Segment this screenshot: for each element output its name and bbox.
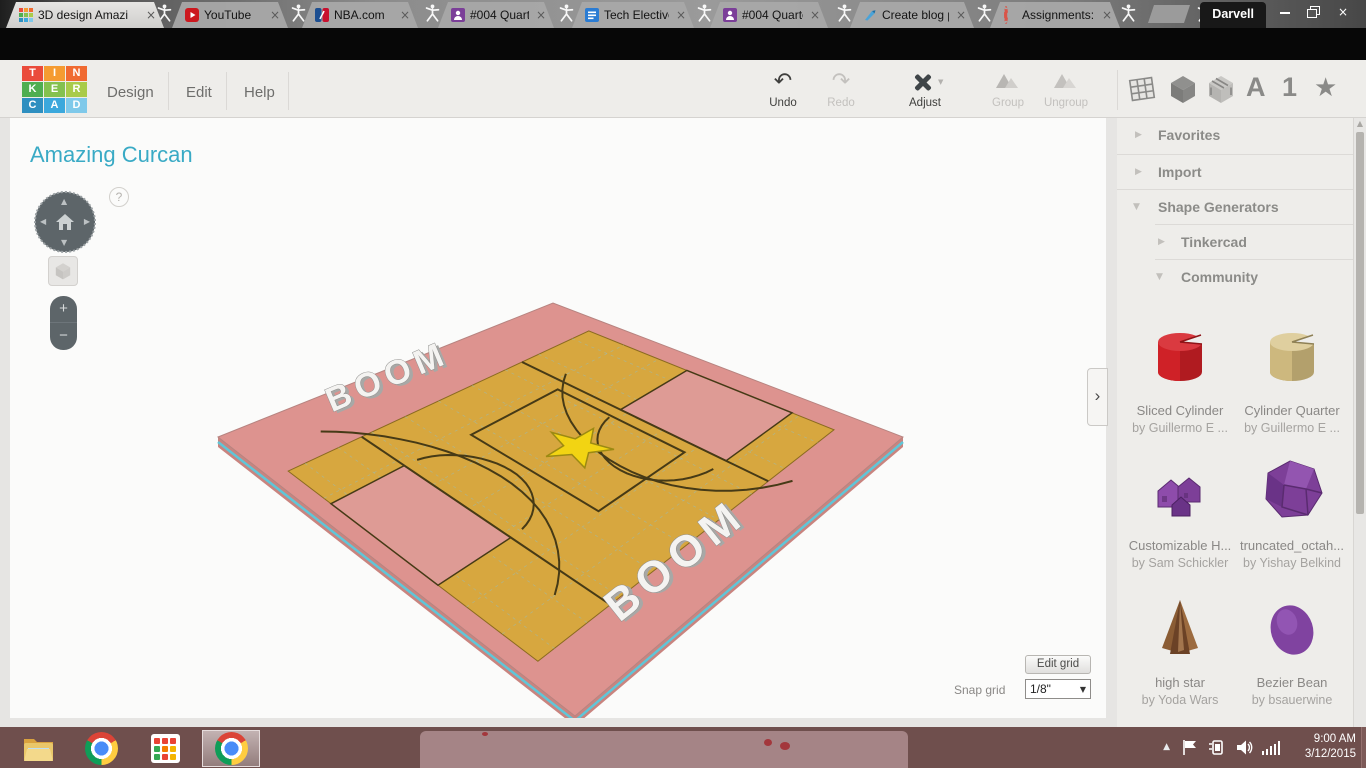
section-label: Favorites xyxy=(1158,127,1220,143)
taskbar-clock[interactable]: 9:00 AM 3/12/2015 xyxy=(1268,732,1356,762)
ungroup-button[interactable]: Ungroup xyxy=(1036,70,1096,109)
header-divider xyxy=(1117,70,1118,110)
design-title[interactable]: Amazing Curcan xyxy=(30,142,193,168)
tab-close-icon[interactable]: × xyxy=(954,9,968,21)
tab-create-blog-post[interactable]: Create blog post × xyxy=(850,2,974,28)
symbols-icon[interactable]: ★ xyxy=(1314,73,1337,103)
browser-profile-button[interactable]: Darvell xyxy=(1200,2,1266,28)
tab-label: 3D design Amazi xyxy=(38,8,139,22)
view-navigation-control[interactable]: ▲ ▼ ◀ ▶ xyxy=(35,192,95,252)
court-3d-model: BOOMBOOMBOOMBOOM xyxy=(10,118,1106,718)
doc-favicon xyxy=(585,8,599,22)
jumpman-theme-icon xyxy=(696,3,713,25)
shape-author: by bsauerwine xyxy=(1236,693,1348,707)
section-label: Shape Generators xyxy=(1158,199,1279,215)
rotate-down-icon[interactable]: ▼ xyxy=(61,238,67,247)
taskbar-theme-panel xyxy=(420,731,908,768)
sidebar-item-community[interactable]: ▼ Community xyxy=(1117,260,1353,295)
solid-shapes-icon[interactable] xyxy=(1168,74,1198,109)
undo-label: Undo xyxy=(753,97,813,109)
tinkercad-logo[interactable]: T I N K E R C A D xyxy=(22,66,87,113)
app-grid-icon xyxy=(151,734,180,763)
redo-icon: ↷ xyxy=(811,70,871,96)
chevron-down-icon: ▼ xyxy=(1156,272,1163,282)
rotate-right-icon[interactable]: ▶ xyxy=(84,217,90,226)
tab-label: Assignments: TE xyxy=(1022,8,1095,22)
zoom-out-button[interactable]: − xyxy=(50,323,77,350)
app-launcher-button[interactable] xyxy=(142,730,188,767)
nba-favicon xyxy=(315,8,329,22)
logo-cell: E xyxy=(44,82,65,97)
logo-cell: C xyxy=(22,98,43,113)
numbers-icon[interactable]: 1 xyxy=(1282,72,1297,103)
jumpman-theme-icon xyxy=(976,3,993,25)
shape-author: by Guillermo E ... xyxy=(1236,421,1348,435)
shape-name: Cylinder Quarter xyxy=(1236,403,1348,418)
tab-assignments[interactable]: Assignments: TE × xyxy=(990,2,1120,28)
houses-thumbnail xyxy=(1144,455,1216,527)
ungroup-icon xyxy=(1053,70,1079,90)
hole-shapes-icon[interactable] xyxy=(1206,74,1236,109)
tab-quarter3-1[interactable]: #004 Quarter 3 P × xyxy=(438,2,554,28)
rotate-up-icon[interactable]: ▲ xyxy=(61,197,67,206)
clock-time: 9:00 AM xyxy=(1268,732,1356,747)
logo-cell: R xyxy=(66,82,87,97)
menu-separator xyxy=(288,72,289,110)
redo-button[interactable]: ↷ Redo xyxy=(811,70,871,109)
letters-icon[interactable]: A xyxy=(1246,72,1266,103)
logo-cell: I xyxy=(44,66,65,81)
clock-date: 3/12/2015 xyxy=(1268,747,1356,762)
redo-label: Redo xyxy=(811,97,871,109)
volume-icon[interactable] xyxy=(1237,740,1253,781)
file-explorer-button[interactable] xyxy=(16,730,62,767)
jumpman-theme-icon xyxy=(836,3,853,25)
shape-customizable-houses[interactable]: Customizable H... by Sam Schickler xyxy=(1124,455,1236,570)
tab-close-icon[interactable]: × xyxy=(534,9,548,21)
tab-label: Create blog post xyxy=(882,8,949,22)
chevron-down-icon: ▼ xyxy=(1133,202,1140,212)
home-view-icon[interactable] xyxy=(56,214,74,230)
show-desktop-button[interactable] xyxy=(1361,727,1366,768)
sidebar-item-favorites[interactable]: ▶ Favorites xyxy=(1117,118,1353,153)
panel-collapse-toggle[interactable]: › xyxy=(1087,368,1108,426)
tab-label: Tech Elective Pro xyxy=(604,8,669,22)
group-button[interactable]: Group xyxy=(978,70,1038,109)
sliced-cylinder-thumbnail xyxy=(1144,320,1216,392)
tab-youtube[interactable]: YouTube × xyxy=(172,2,288,28)
sidebar-scrollbar[interactable]: ▲ xyxy=(1353,118,1366,727)
sidebar-item-tinkercad-generators[interactable]: ▶ Tinkercad xyxy=(1117,225,1353,260)
logo-cell: T xyxy=(22,66,43,81)
shape-name: high star xyxy=(1124,675,1236,690)
shapes-sidebar: ▶ Favorites ▶ Import ▼ Shape Generators … xyxy=(1117,118,1366,727)
cylinder-quarter-thumbnail xyxy=(1256,320,1328,392)
ungroup-label: Ungroup xyxy=(1036,97,1096,109)
tray-hidden-icons[interactable]: ▲ xyxy=(1163,727,1170,768)
tab-close-icon[interactable]: × xyxy=(674,9,688,21)
chevron-right-icon: ▶ xyxy=(1135,167,1142,177)
tinkercad-favicon xyxy=(19,8,33,22)
snap-grid-label: Snap grid xyxy=(954,683,1005,697)
design-viewport[interactable]: BOOMBOOMBOOMBOOM Amazing Curcan ▲ ▼ ◀ ▶ … xyxy=(10,118,1106,718)
tinkercad-header: T I N K E R C A D Design Edit Help ↶ Und… xyxy=(0,60,1366,118)
logo-cell: D xyxy=(66,98,87,113)
zoom-in-button[interactable]: + xyxy=(50,296,77,323)
window-restore-button[interactable] xyxy=(1302,3,1324,21)
tab-label: #004 Quarter 3 P xyxy=(470,8,529,22)
adjust-icon: ▼ xyxy=(895,70,955,96)
window-minimize-button[interactable] xyxy=(1274,3,1296,21)
logo-cell: N xyxy=(66,66,87,81)
tab-nba[interactable]: NBA.com × xyxy=(302,2,418,28)
view-cube-button[interactable] xyxy=(48,256,78,286)
sidebar-item-import[interactable]: ▶ Import xyxy=(1117,155,1353,190)
tab-tinkercad[interactable]: 3D design Amazi × xyxy=(6,2,164,28)
scroll-up-icon[interactable]: ▲ xyxy=(1355,119,1365,128)
chrome-icon xyxy=(215,732,248,765)
group-label: Group xyxy=(978,97,1038,109)
chevron-right-icon: ▶ xyxy=(1135,130,1142,140)
tab-close-icon[interactable]: × xyxy=(398,9,412,21)
chrome-icon xyxy=(85,732,118,765)
tab-close-icon[interactable]: × xyxy=(1100,9,1114,21)
shape-author: by Guillermo E ... xyxy=(1124,421,1236,435)
chrome-taskbar-button[interactable] xyxy=(78,730,124,767)
shape-high-star[interactable]: high star by Yoda Wars xyxy=(1124,592,1236,707)
jumpman-theme-icon xyxy=(558,3,575,25)
power-battery-icon[interactable] xyxy=(1208,739,1226,780)
snap-grid-value: 1/8" xyxy=(1030,682,1051,696)
dashed-circle-favicon xyxy=(1003,8,1017,22)
windows-taskbar: ▲ 9:00 AM 3/12/2015 xyxy=(0,727,1366,768)
youtube-favicon xyxy=(185,8,199,22)
pen-favicon xyxy=(863,8,877,22)
tab-close-icon[interactable]: × xyxy=(808,9,822,21)
window-close-button[interactable]: × xyxy=(1332,3,1354,21)
jumpman-theme-icon xyxy=(290,3,307,25)
shape-name: Bezier Bean xyxy=(1236,675,1348,690)
chevron-right-icon: ▶ xyxy=(1158,237,1165,247)
menu-design[interactable]: Design xyxy=(107,84,154,101)
logo-cell: K xyxy=(22,82,43,97)
section-label: Tinkercad xyxy=(1181,234,1247,250)
tab-close-icon[interactable]: × xyxy=(268,9,282,21)
shape-name: truncated_octah... xyxy=(1236,538,1348,553)
shape-author: by Sam Schickler xyxy=(1124,556,1236,570)
undo-button[interactable]: ↶ Undo xyxy=(753,70,813,109)
menu-help[interactable]: Help xyxy=(244,84,275,101)
profile-doc-favicon xyxy=(723,8,737,22)
workplane-icon[interactable] xyxy=(1126,74,1158,109)
tab-label: YouTube xyxy=(204,8,263,22)
zoom-control: + − xyxy=(50,296,77,350)
shape-author: by Yishay Belkind xyxy=(1236,556,1348,570)
tab-label: NBA.com xyxy=(334,8,393,22)
adjust-label: Adjust xyxy=(895,97,955,109)
profile-doc-favicon xyxy=(451,8,465,22)
shape-name: Customizable H... xyxy=(1124,538,1236,553)
page-background: BOOMBOOMBOOMBOOM Amazing Curcan ▲ ▼ ◀ ▶ … xyxy=(0,118,1366,727)
rotate-left-icon[interactable]: ◀ xyxy=(40,217,46,226)
select-caret-icon: ▼ xyxy=(1080,685,1086,694)
menu-separator xyxy=(226,72,227,110)
octahedron-thumbnail xyxy=(1256,455,1328,527)
scrollbar-thumb[interactable] xyxy=(1356,132,1364,514)
undo-icon: ↶ xyxy=(753,70,813,96)
snap-grid-select[interactable]: 1/8" ▼ xyxy=(1025,679,1091,699)
browser-address-bar: ← → https://www.tinkercad.com/things/6N6… xyxy=(0,28,1366,60)
high-star-thumbnail xyxy=(1144,592,1216,664)
file-explorer-icon xyxy=(22,734,56,764)
action-center-icon[interactable] xyxy=(1182,739,1198,780)
browser-tab-strip: 3D design Amazi × YouTube × NBA.com × #0… xyxy=(0,0,1366,28)
group-icon xyxy=(995,70,1021,90)
shape-sliced-cylinder[interactable]: Sliced Cylinder by Guillermo E ... xyxy=(1124,320,1236,435)
edit-grid-button[interactable]: Edit grid xyxy=(1025,655,1091,674)
tab-tech-elective[interactable]: Tech Elective Pro × xyxy=(572,2,694,28)
chrome-active-taskbar-button[interactable] xyxy=(202,730,260,767)
shape-author: by Yoda Wars xyxy=(1124,693,1236,707)
bean-thumbnail xyxy=(1256,592,1328,664)
adjust-button[interactable]: ▼ Adjust xyxy=(895,70,955,109)
shape-cylinder-quarter[interactable]: Cylinder Quarter by Guillermo E ... xyxy=(1236,320,1348,435)
tab-close-icon[interactable]: × xyxy=(144,9,158,21)
adjust-caret-icon: ▼ xyxy=(938,70,943,94)
sidebar-item-shape-generators[interactable]: ▼ Shape Generators xyxy=(1117,190,1353,225)
section-label: Import xyxy=(1158,164,1202,180)
shape-bezier-bean[interactable]: Bezier Bean by bsauerwine xyxy=(1236,592,1348,707)
help-icon[interactable]: ? xyxy=(109,187,129,207)
menu-separator xyxy=(168,72,169,110)
logo-cell: A xyxy=(44,98,65,113)
menu-edit[interactable]: Edit xyxy=(186,84,212,101)
section-label: Community xyxy=(1181,269,1258,285)
tab-quarter3-2[interactable]: #004 Quarter 3 P × xyxy=(710,2,828,28)
tab-label: #004 Quarter 3 P xyxy=(742,8,803,22)
jumpman-theme-icon xyxy=(424,3,441,25)
jumpman-theme-icon xyxy=(1120,3,1137,25)
new-tab-button[interactable] xyxy=(1148,5,1190,23)
shape-truncated-octahedron[interactable]: truncated_octah... by Yishay Belkind xyxy=(1236,455,1348,570)
shape-name: Sliced Cylinder xyxy=(1124,403,1236,418)
